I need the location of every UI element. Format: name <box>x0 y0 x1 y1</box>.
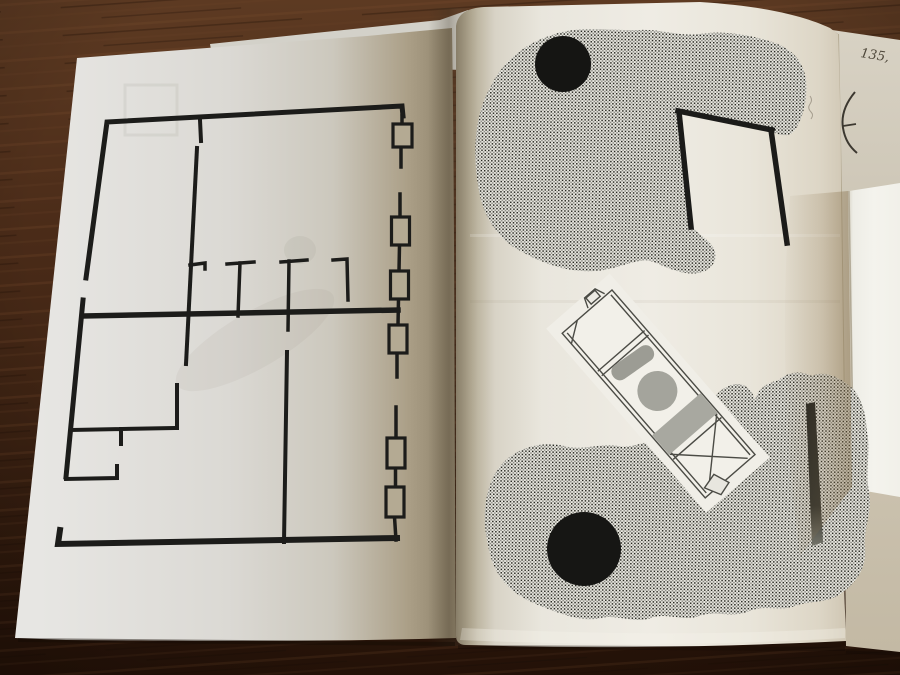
left-page <box>15 28 456 641</box>
window-symbol <box>386 487 404 517</box>
right-page <box>456 2 870 647</box>
window-symbol <box>392 217 410 245</box>
ink-dot-top <box>535 36 591 92</box>
window-symbol <box>393 124 412 147</box>
plan-wall-stub <box>200 120 201 141</box>
window-symbol <box>389 325 407 353</box>
photo-stage: 135, <box>0 0 900 675</box>
window-symbol <box>387 438 405 468</box>
gutter-shadow <box>428 8 478 646</box>
page-crease <box>470 300 840 303</box>
ink-dot-bottom <box>547 512 621 586</box>
window-symbol <box>391 271 409 299</box>
page-bottom-shadow <box>846 652 900 654</box>
page-bottom-shadow <box>458 647 845 649</box>
